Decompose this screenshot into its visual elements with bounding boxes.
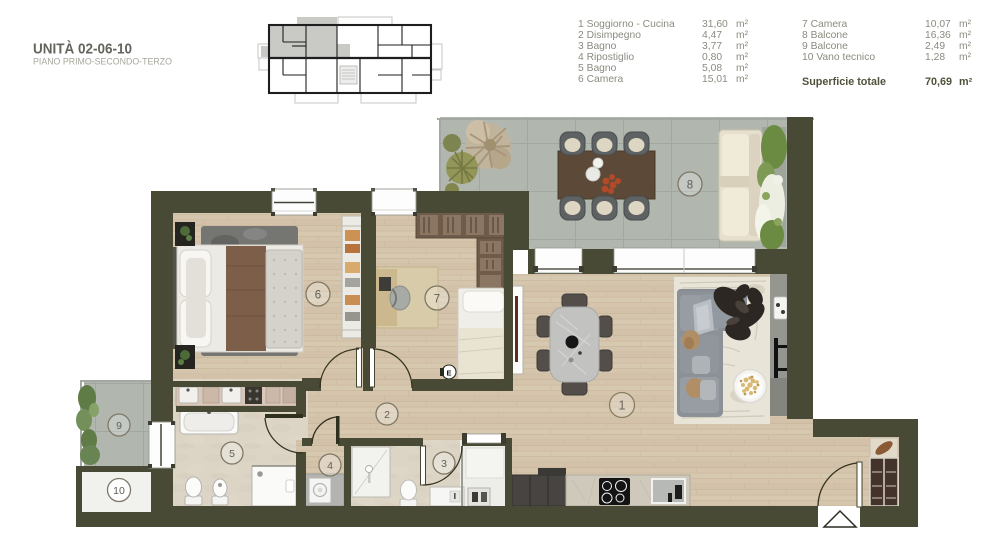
svg-text:PIANO PRIMO-SECONDO-TERZO: PIANO PRIMO-SECONDO-TERZO <box>33 57 172 67</box>
svg-text:1: 1 <box>619 399 626 413</box>
svg-text:5,08: 5,08 <box>702 63 722 74</box>
svg-text:8 Balcone: 8 Balcone <box>802 30 848 41</box>
svg-text:5: 5 <box>229 448 235 460</box>
svg-text:7 Camera: 7 Camera <box>802 19 847 30</box>
svg-text:m²: m² <box>959 19 972 30</box>
svg-text:10: 10 <box>113 485 125 497</box>
svg-text:m²: m² <box>736 74 749 85</box>
svg-text:m²: m² <box>959 41 972 52</box>
svg-text:7: 7 <box>434 294 440 306</box>
svg-text:4 Ripostiglio: 4 Ripostiglio <box>578 52 634 63</box>
svg-text:10,07: 10,07 <box>925 19 951 30</box>
svg-text:1,28: 1,28 <box>925 52 945 63</box>
svg-text:70,69: 70,69 <box>925 76 952 88</box>
svg-text:2: 2 <box>384 409 390 421</box>
svg-text:2 Disimpegno: 2 Disimpegno <box>578 30 641 41</box>
svg-text:UNITÀ 02-06-10: UNITÀ 02-06-10 <box>33 41 132 58</box>
svg-text:m²: m² <box>736 41 749 52</box>
svg-text:E: E <box>446 369 451 378</box>
svg-text:4: 4 <box>327 460 333 472</box>
svg-text:4,47: 4,47 <box>702 30 722 41</box>
svg-text:1 Soggiorno - Cucina: 1 Soggiorno - Cucina <box>578 19 675 30</box>
svg-text:m²: m² <box>959 30 972 41</box>
svg-text:31,60: 31,60 <box>702 19 728 30</box>
svg-text:Superficie totale: Superficie totale <box>802 76 886 88</box>
svg-text:3 Bagno: 3 Bagno <box>578 41 617 52</box>
svg-text:m²: m² <box>959 76 973 88</box>
svg-text:10 Vano tecnico: 10 Vano tecnico <box>802 52 875 63</box>
svg-text:5 Bagno: 5 Bagno <box>578 63 617 74</box>
svg-text:0,80: 0,80 <box>702 52 722 63</box>
svg-text:6: 6 <box>315 290 321 302</box>
svg-text:m²: m² <box>736 30 749 41</box>
svg-text:15,01: 15,01 <box>702 74 728 85</box>
svg-text:3,77: 3,77 <box>702 41 722 52</box>
svg-text:16,36: 16,36 <box>925 30 951 41</box>
svg-text:3: 3 <box>441 458 447 470</box>
svg-text:m²: m² <box>736 63 749 74</box>
svg-text:m²: m² <box>736 52 749 63</box>
svg-text:2,49: 2,49 <box>925 41 945 52</box>
svg-text:m²: m² <box>959 52 972 63</box>
svg-text:8: 8 <box>687 180 693 192</box>
svg-text:6 Camera: 6 Camera <box>578 74 623 85</box>
svg-text:9: 9 <box>116 420 122 432</box>
svg-text:9 Balcone: 9 Balcone <box>802 41 848 52</box>
svg-text:m²: m² <box>736 19 749 30</box>
